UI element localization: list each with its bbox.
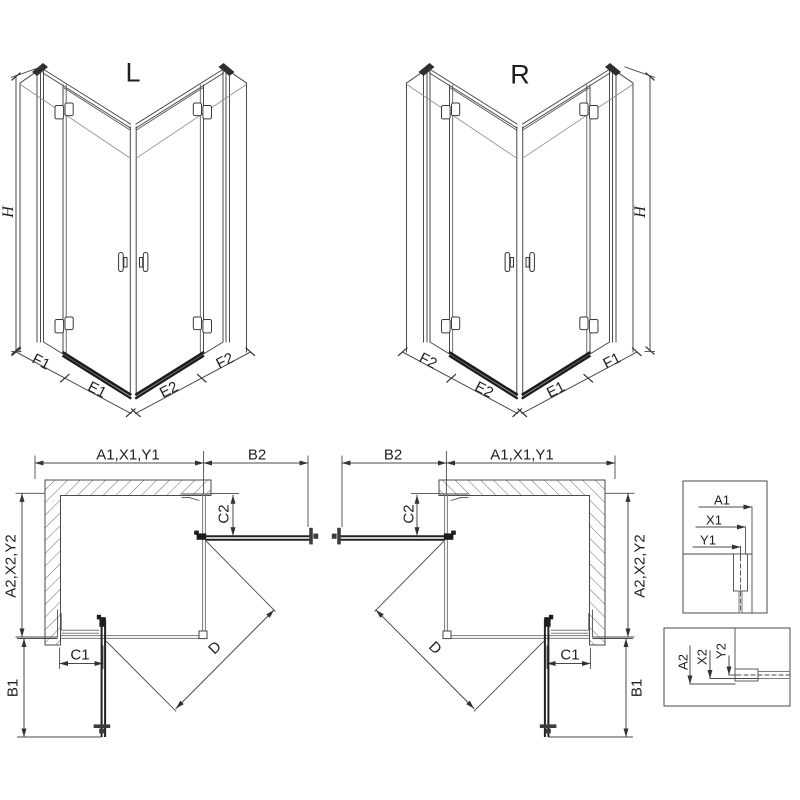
iso-right-height-label: H bbox=[633, 206, 649, 218]
plan-right-b2-label: B2 bbox=[384, 448, 402, 463]
plan-left-c1-label: C1 bbox=[70, 648, 89, 663]
plan-right-depth-label: A2,X2,Y2 bbox=[633, 534, 648, 597]
plan-right-c1-label: C1 bbox=[560, 648, 579, 663]
plan-view-left bbox=[16, 452, 318, 738]
detail-top-a1-label: A1 bbox=[714, 494, 730, 507]
plan-left-b2-label: B2 bbox=[248, 448, 266, 463]
drawing-canvas bbox=[0, 0, 800, 800]
plan-right-c2-label: C2 bbox=[402, 504, 417, 523]
plan-right-width-top-label: A1,X1,Y1 bbox=[490, 448, 553, 463]
iso-left-variant-label: L bbox=[125, 60, 140, 87]
detail-top-y1-label: Y1 bbox=[700, 534, 716, 547]
iso-right-variant-label: R bbox=[510, 62, 530, 89]
plan-left-depth-label: A2,X2,Y2 bbox=[4, 534, 19, 597]
detail-top-x1-label: X1 bbox=[706, 514, 722, 527]
plan-left-width-top-label: A1,X1,Y1 bbox=[96, 448, 159, 463]
detail-bottom-x2-label: X2 bbox=[696, 649, 709, 665]
detail-bottom-a2-label: A2 bbox=[677, 654, 690, 670]
plan-right-b1-label: B1 bbox=[630, 679, 645, 697]
detail-bottom-y2-label: Y2 bbox=[715, 643, 728, 659]
shower-enclosure-technical-drawing: L H F1 E1 E2 F2 R H F2 E2 E1 F1 A1,X1,Y1… bbox=[0, 0, 800, 800]
plan-left-c2-label: C2 bbox=[217, 504, 232, 523]
plan-view-right bbox=[332, 452, 634, 738]
plan-left-b1-label: B1 bbox=[6, 679, 21, 697]
iso-left-height-label: H bbox=[1, 206, 17, 218]
